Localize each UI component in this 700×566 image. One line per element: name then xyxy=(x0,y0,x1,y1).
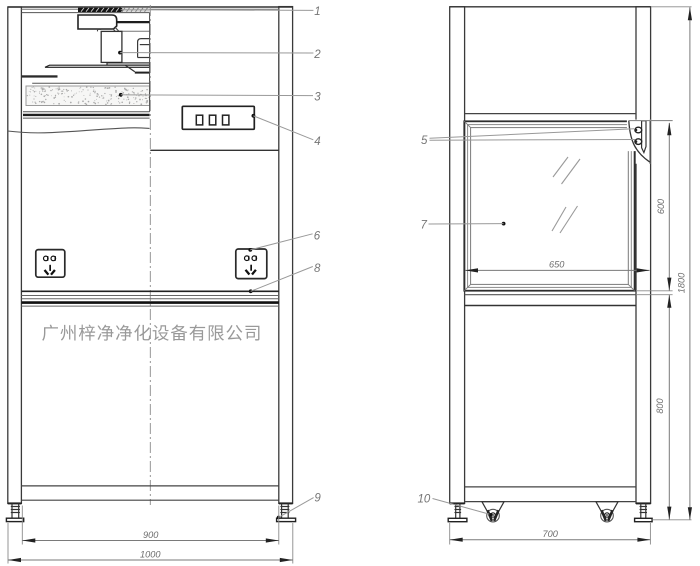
svg-text:600: 600 xyxy=(656,198,666,214)
svg-text:3: 3 xyxy=(314,91,321,103)
svg-text:10: 10 xyxy=(418,494,431,506)
svg-text:4: 4 xyxy=(314,136,320,148)
svg-text:1000: 1000 xyxy=(140,549,161,559)
svg-text:800: 800 xyxy=(655,397,665,413)
svg-text:1800: 1800 xyxy=(677,272,687,293)
svg-text:700: 700 xyxy=(543,529,559,539)
svg-text:9: 9 xyxy=(314,493,321,505)
svg-text:8: 8 xyxy=(314,263,321,275)
svg-text:2: 2 xyxy=(313,49,321,61)
svg-text:7: 7 xyxy=(421,220,428,232)
svg-text:650: 650 xyxy=(549,260,565,270)
svg-text:6: 6 xyxy=(314,230,321,242)
svg-text:5: 5 xyxy=(421,135,428,147)
svg-text:900: 900 xyxy=(143,530,159,540)
svg-text:1: 1 xyxy=(314,6,320,18)
